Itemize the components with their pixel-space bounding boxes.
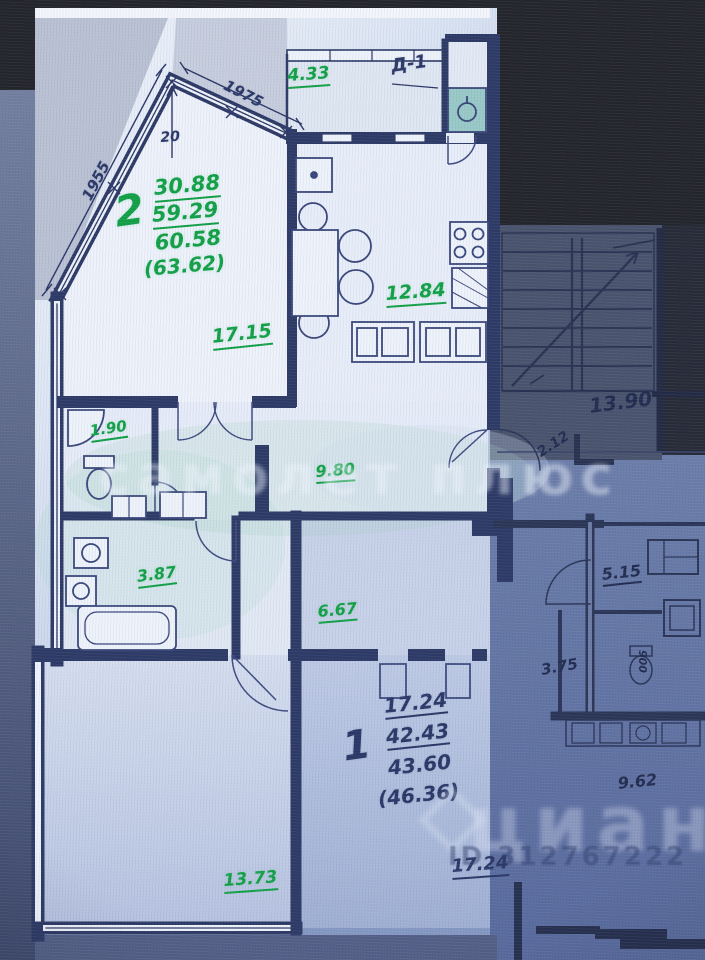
area-balcony-2: 4.33 xyxy=(287,65,330,89)
apt2-total-with-balcony: (63.62) xyxy=(143,252,226,279)
area-closet-1: 2.12 xyxy=(535,429,572,460)
area-corridor-1: 5.15 xyxy=(601,563,642,587)
area-corridor-2: 9.80 xyxy=(315,461,356,484)
area-wc-2: 1.90 xyxy=(89,419,128,443)
area-living-1: 17.24 xyxy=(451,854,509,880)
area-bedroom-2: 13.73 xyxy=(223,869,278,894)
area-bathroom-2: 3.87 xyxy=(136,564,178,589)
dim-bay-left: 1955 xyxy=(80,159,113,203)
labels-layer: 2 30.88 59.29 60.58 (63.62) 17.15 12.84 … xyxy=(0,0,705,960)
floorplan-photo: 2 30.88 59.29 60.58 (63.62) 17.15 12.84 … xyxy=(0,0,705,960)
apt2-unit-number: 2 xyxy=(112,188,147,234)
apt1-total-area: 43.60 xyxy=(387,751,452,778)
dim-900: 900 xyxy=(637,650,648,673)
area-kitchen-1: 9.62 xyxy=(617,772,658,792)
area-hall-1: 6.67 xyxy=(317,601,358,624)
door-mark-d1: Д-1 xyxy=(390,53,428,76)
apt1-unit-number: 1 xyxy=(340,724,373,767)
area-kitchen-2: 12.84 xyxy=(385,281,447,308)
dim-bay-right: 1975 xyxy=(221,78,265,110)
apt1-rooms-total: 42.43 xyxy=(385,720,450,750)
area-wc-1: 3.75 xyxy=(540,657,579,678)
apt1-living-total: 17.24 xyxy=(383,689,448,719)
area-living-2: 17.15 xyxy=(211,322,273,351)
dim-bay-apex: 20 xyxy=(160,130,180,145)
stairwell-area: 13.90 xyxy=(588,388,653,416)
